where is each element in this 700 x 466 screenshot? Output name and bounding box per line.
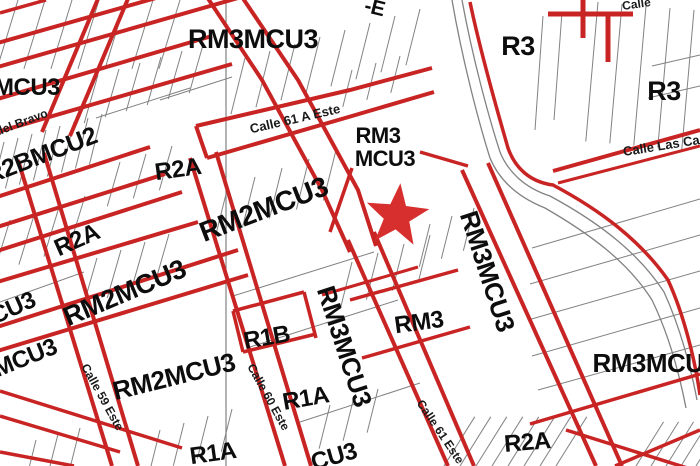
zone-label-r3-right: R3 — [647, 76, 681, 106]
zoning-map-canvas[interactable]: RM3MCU3R3R3MCU3R2BMCU2RM3MCU3R2ARM2MCU3R… — [0, 0, 700, 466]
zone-label-mcu3-topleft: MCU3 — [0, 74, 60, 101]
map-drawing: RM3MCU3R3R3MCU3R2BMCU2RM3MCU3R2ARM2MCU3R… — [0, 0, 700, 466]
zone-label-mcu3-line2: MCU3 — [355, 146, 416, 171]
zone-label-r2a-bottomright: R2A — [503, 427, 552, 458]
zone-label-rm3-line1: RM3 — [356, 123, 401, 148]
zone-label-r3-top: R3 — [501, 31, 535, 61]
zone-label-rm3mcu3-top: RM3MCU3 — [188, 24, 318, 54]
zone-label-rm3mcu3-right: RM3MCU3 — [592, 348, 700, 378]
